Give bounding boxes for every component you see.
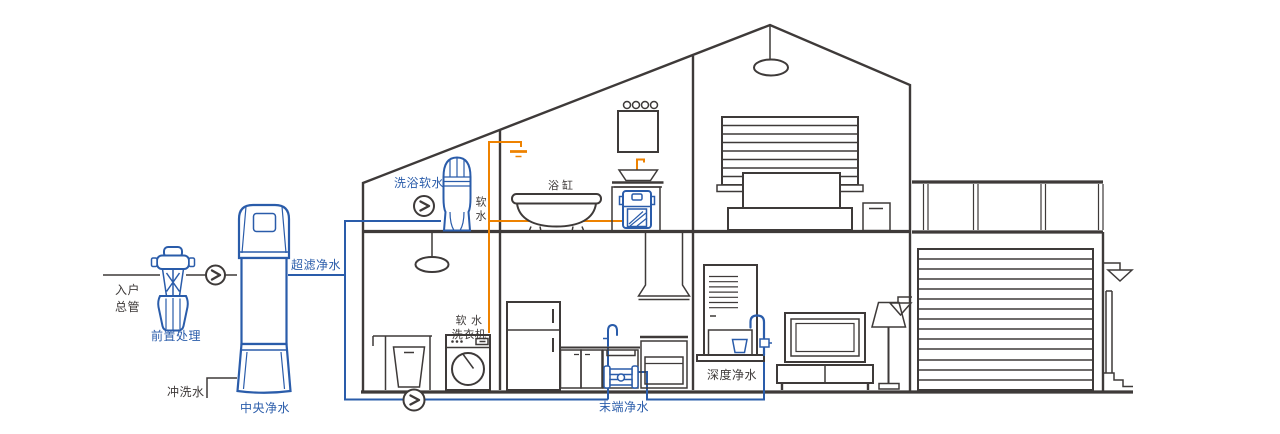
vanity-light-icon <box>651 102 658 109</box>
garage-door-slats <box>918 259 1093 380</box>
pre-filter-device <box>152 247 195 331</box>
vanity-light-icon <box>633 102 640 109</box>
washing-machine <box>446 335 490 390</box>
fridge <box>507 302 560 390</box>
bathroom <box>512 102 664 233</box>
bedroom <box>717 26 890 231</box>
steps <box>1103 373 1133 387</box>
purifier-stand <box>697 355 764 361</box>
deep-purifier-device <box>697 265 772 361</box>
vanity-purifier-device <box>620 191 655 228</box>
label-inlet-main: 入户 总管 <box>115 282 140 316</box>
mirror <box>618 111 658 152</box>
label-deep-purifier: 深度净水 <box>707 367 757 383</box>
nightstand <box>863 203 890 231</box>
flow-arrow-icon <box>414 196 434 216</box>
house-diagram <box>0 0 1280 434</box>
label-soft-water: 软水 <box>472 196 488 224</box>
range-hood <box>639 232 690 296</box>
wall-lamp-right-icon <box>1103 263 1132 281</box>
bed-headboard <box>743 173 840 208</box>
base-cabinet <box>581 350 602 388</box>
downpipe <box>1106 291 1112 373</box>
flow-arrow-icon <box>206 266 225 285</box>
balcony-posts <box>924 184 1104 230</box>
blind-slats <box>722 126 858 177</box>
vanity-light-icon <box>642 102 649 109</box>
diagram-canvas: 入户 总管 前置处理 中央净水 冲洗水 超滤净水 洗浴软水 软水 浴缸 软 水 … <box>0 0 1280 434</box>
bed-base <box>728 208 852 230</box>
shower-softener-device <box>444 158 471 231</box>
base-cabinet <box>561 350 582 388</box>
tv <box>785 313 865 362</box>
pendant-lamp-icon <box>416 257 449 272</box>
shower-head-icon <box>510 152 527 157</box>
bathtub-bowl <box>517 204 596 227</box>
kitchen-faucet-icon <box>608 325 617 346</box>
faucet-valve <box>760 339 769 347</box>
label-pre-treatment: 前置处理 <box>151 328 201 344</box>
vanity-faucet-icon <box>637 160 644 171</box>
label-flush-water: 冲洗水 <box>167 384 205 400</box>
water-cup-icon <box>733 340 748 353</box>
laundry-room <box>373 232 490 390</box>
flow-arrow-icon <box>404 390 425 411</box>
kitchen-sink <box>607 350 635 356</box>
central-purifier-device <box>238 205 291 393</box>
garage <box>890 182 1133 392</box>
label-shower-softener: 洗浴软水 <box>394 175 444 191</box>
label-bathtub: 浴缸 <box>548 179 576 193</box>
kitchen <box>507 232 690 390</box>
label-terminal-purifier: 末端净水 <box>599 399 649 415</box>
flush-water-pipe <box>207 378 237 398</box>
pendant-lamp-icon <box>754 60 788 76</box>
bathtub-rim <box>512 194 601 204</box>
vanity-light-icon <box>624 102 631 109</box>
label-ultrafiltration: 超滤净水 <box>291 257 341 273</box>
label-soft-water-washer: 软 水 洗衣机 <box>450 314 488 342</box>
under-sink-purifier-device <box>604 366 638 388</box>
tv-stand <box>777 365 873 390</box>
label-central-purifier: 中央净水 <box>240 400 290 416</box>
sink-bowl <box>619 170 658 181</box>
